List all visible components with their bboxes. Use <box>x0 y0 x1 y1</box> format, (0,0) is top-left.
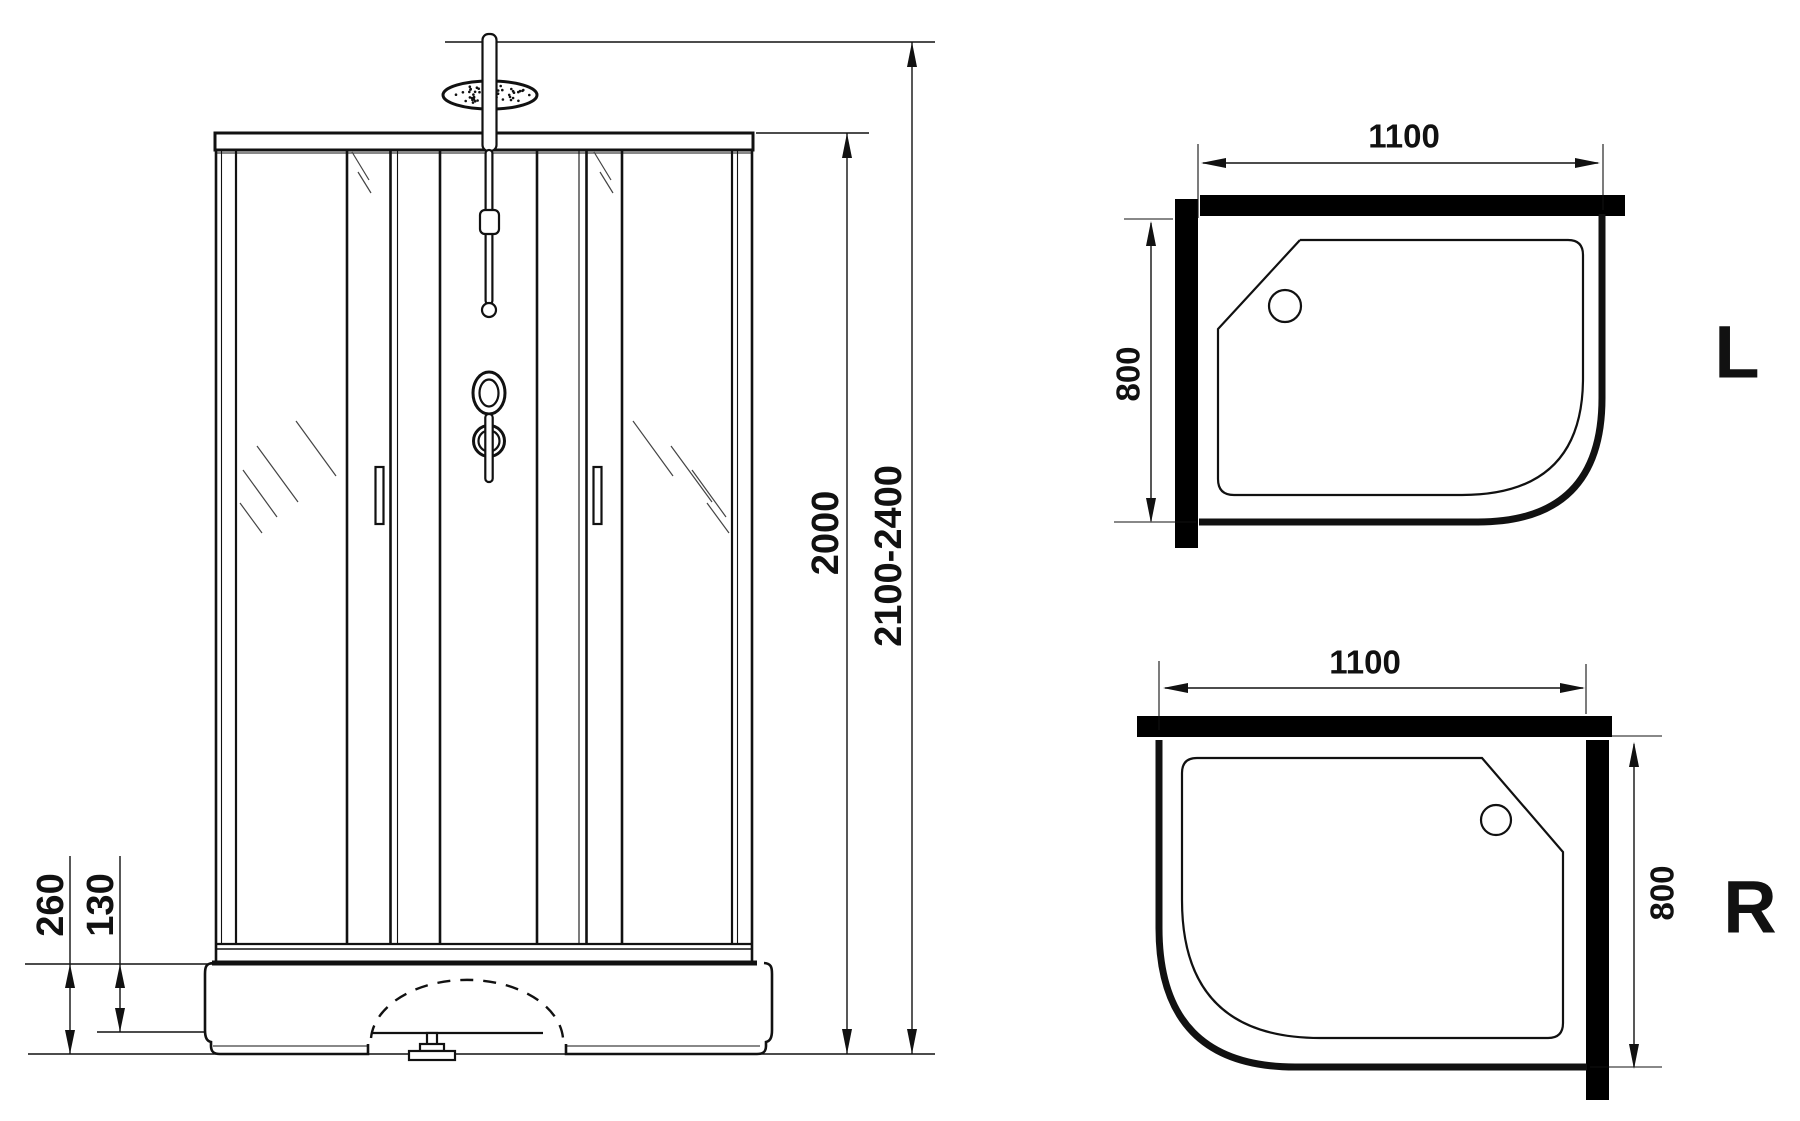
faucet-controls <box>473 372 505 482</box>
dim-label-total-height-range: 2100-2400 <box>868 465 910 647</box>
drain-fitting <box>409 1033 455 1060</box>
shower-cabin-technical-drawing: 260 130 2000 2100-2400 1100 <box>0 0 1800 1121</box>
mixer-lever <box>485 414 492 482</box>
drain-hole-L <box>1269 290 1301 322</box>
upper-knob-inner <box>480 380 499 407</box>
orientation-letter-R: R <box>1723 866 1776 949</box>
tray-access-dashed-arc <box>371 980 563 1046</box>
shower-rod <box>483 34 497 151</box>
drain-base <box>409 1051 455 1060</box>
hand-shower-knob-ball <box>482 303 496 317</box>
tray-outline-plan-L <box>1218 240 1583 495</box>
wall-bar-right-R <box>1586 740 1609 1100</box>
wall-bar-left-L <box>1175 199 1198 548</box>
dim-label-R-width: 1100 <box>1329 644 1401 681</box>
dim-label-cabin-height: 2000 <box>805 491 847 576</box>
plan-view-right: 1100 800 R <box>1137 644 1777 1101</box>
front-dimensions: 260 130 2000 2100-2400 <box>30 42 917 1054</box>
front-elevation-view: 260 130 2000 2100-2400 <box>25 34 935 1060</box>
tray-outline-left <box>205 963 368 1054</box>
front-extension-lines <box>25 42 935 1054</box>
wall-bar-top-R <box>1137 716 1612 737</box>
dim-label-base-height: 260 <box>30 873 72 936</box>
tray-outline-plan-R <box>1182 758 1563 1038</box>
dim-label-L-depth: 800 <box>1110 346 1147 401</box>
hand-shower-column <box>480 150 499 317</box>
left-door-handle <box>376 467 384 524</box>
dim-label-L-width: 1100 <box>1368 118 1440 155</box>
drain-hole-R <box>1481 805 1511 835</box>
glass-front-profile-R <box>1159 740 1587 1067</box>
right-door-handle <box>594 467 602 524</box>
hand-shower-slider <box>480 210 499 234</box>
dim-label-R-depth: 800 <box>1644 865 1681 920</box>
tray-outline-right <box>566 963 772 1054</box>
orientation-letter-L: L <box>1714 311 1759 394</box>
dim-label-base-inner-height: 130 <box>80 873 122 936</box>
glass-panel-frame-lines <box>216 150 752 962</box>
plan-view-left: 1100 800 L <box>1110 118 1760 549</box>
shower-tray <box>205 963 772 1060</box>
wall-bar-top-L <box>1200 195 1625 216</box>
